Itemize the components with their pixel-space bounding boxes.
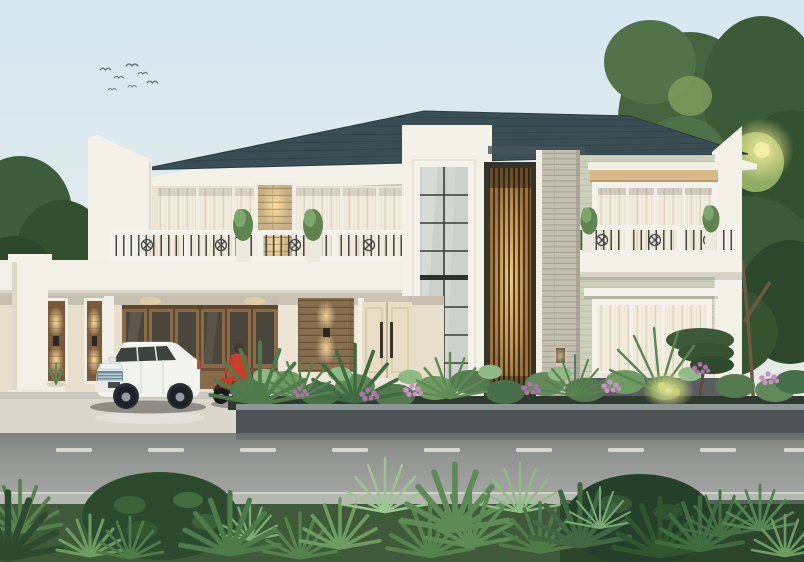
car-headlight xyxy=(99,363,123,369)
wood-slat-feature xyxy=(484,162,536,400)
balcony-slab xyxy=(0,260,412,302)
car-taillight xyxy=(197,360,201,369)
balcony-plant xyxy=(303,209,323,262)
planter-curb xyxy=(236,404,804,434)
entry-sconce xyxy=(323,328,330,337)
architectural-render xyxy=(0,0,804,562)
house-render-canvas xyxy=(0,0,804,562)
car-windows xyxy=(113,346,176,362)
porch-column xyxy=(8,254,52,400)
entry-stone-wall xyxy=(298,298,354,372)
balcony-plant xyxy=(233,209,253,262)
slat-stone-divider xyxy=(536,150,542,400)
window-awning xyxy=(584,288,718,299)
